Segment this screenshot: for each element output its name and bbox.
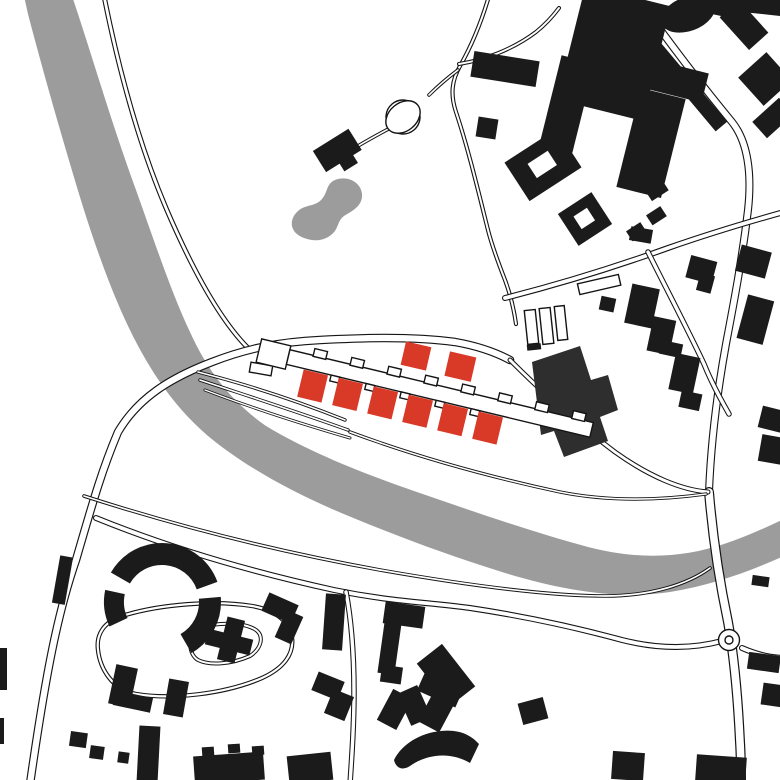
site-plan-page <box>0 0 780 780</box>
roundabout-island <box>725 636 733 644</box>
buildings-south-center <box>377 601 549 768</box>
buildings-north <box>313 129 362 172</box>
site-plan-map <box>0 0 780 780</box>
pier-outline <box>539 307 554 344</box>
horseshoe-building <box>120 554 207 586</box>
buildings-southeast <box>611 575 780 780</box>
highlight-terrace-block <box>297 370 328 403</box>
highlight-detached-block <box>401 341 432 370</box>
highlight-detached-block <box>444 351 476 381</box>
horseshoe-building <box>114 592 119 622</box>
pier-outline <box>524 309 538 344</box>
pond <box>292 178 362 240</box>
large-hall-building <box>532 346 618 457</box>
pier-outline <box>554 306 567 341</box>
site-center <box>250 306 618 466</box>
turning-circle-loop-2 <box>379 94 426 140</box>
crescent-building <box>394 731 479 769</box>
